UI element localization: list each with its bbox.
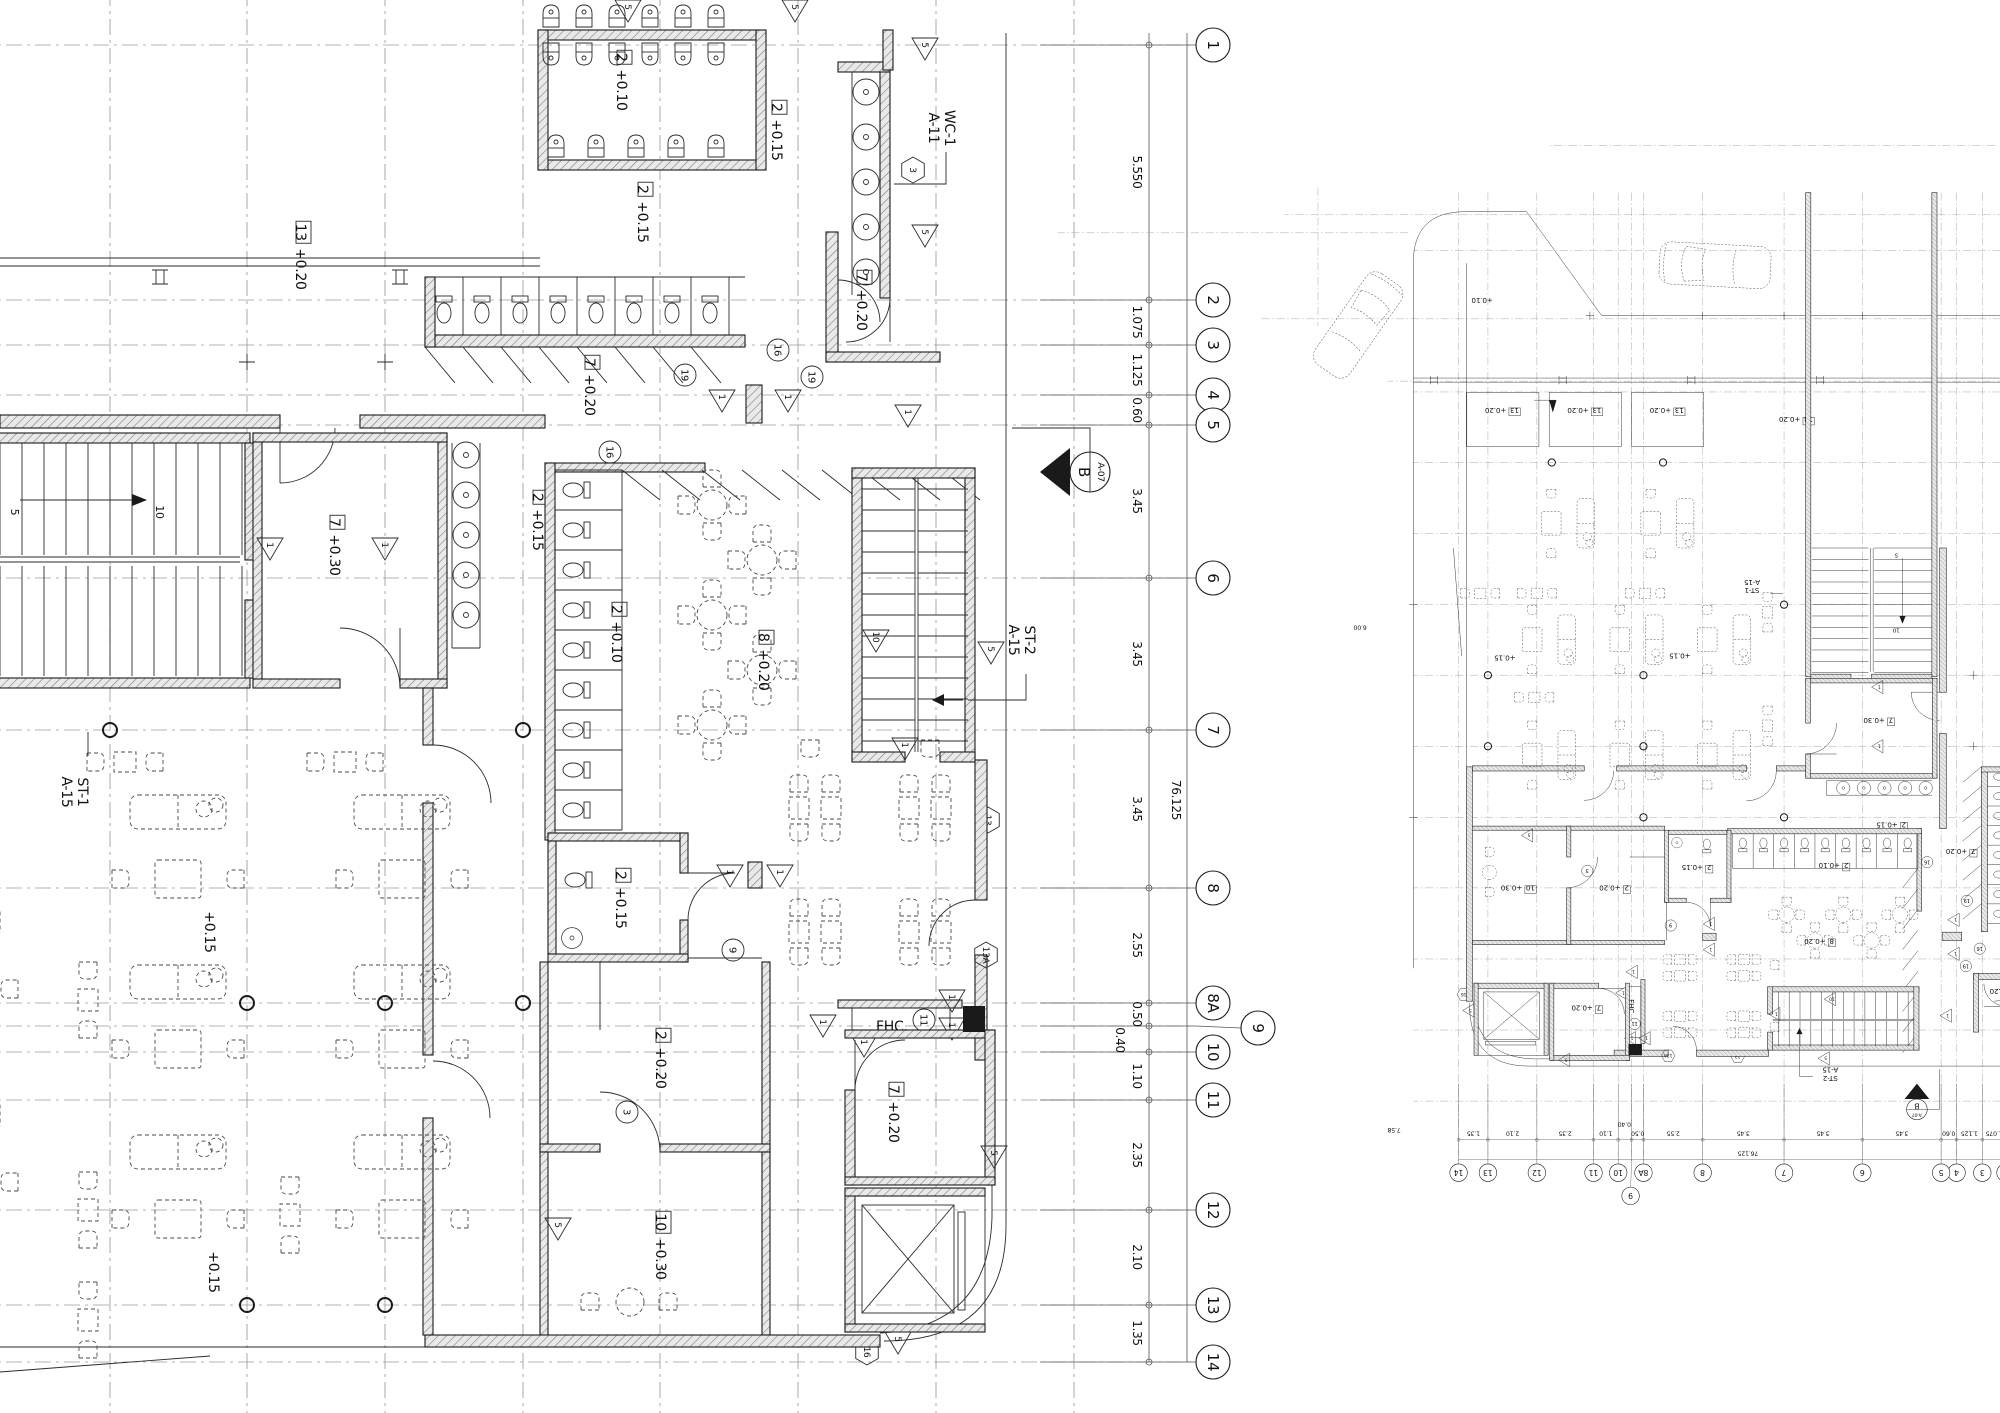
cad-sheet: 123456788A910111213145.5501.0751.1250.60… <box>0 0 2000 1413</box>
floor-plan-drawing: 123456788A910111213145.5501.0751.1250.60… <box>0 0 2000 1413</box>
sheet-background <box>0 0 2000 1413</box>
